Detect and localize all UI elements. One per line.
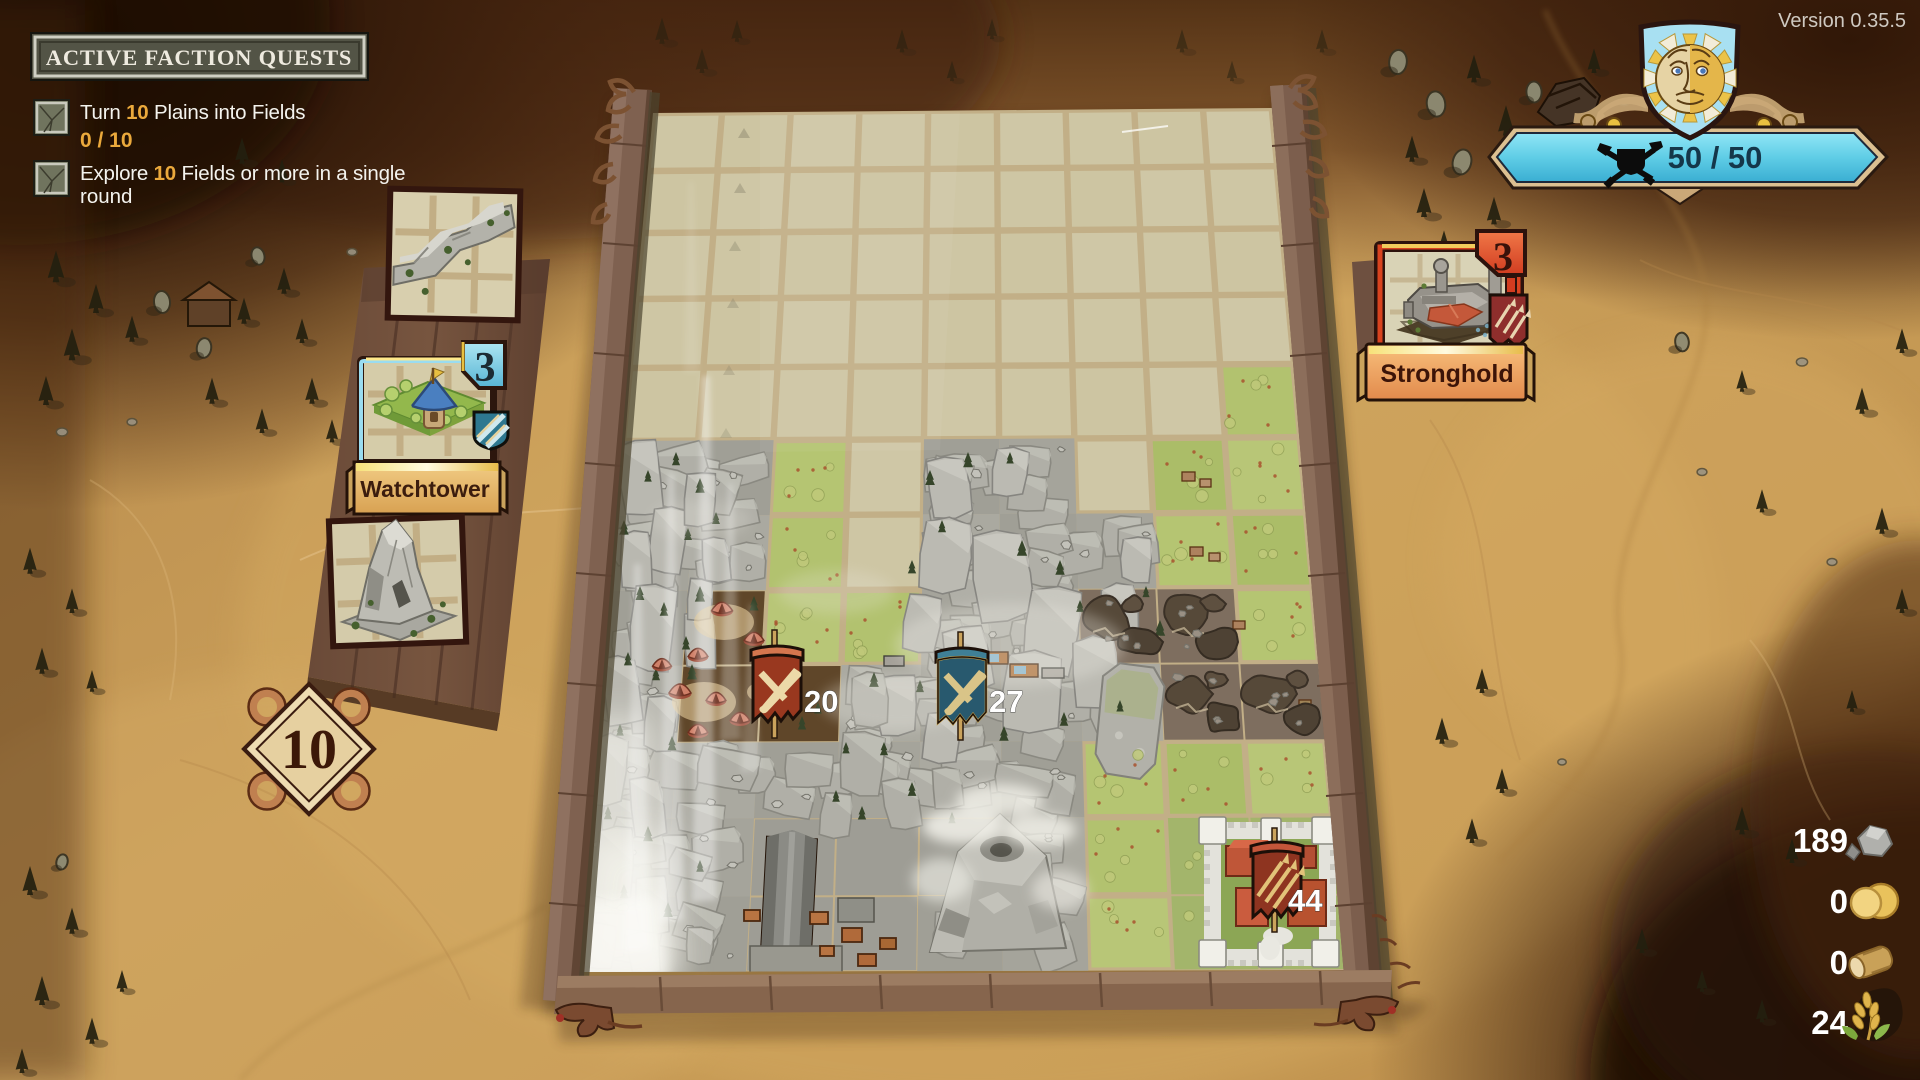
svg-text:44: 44 bbox=[1288, 883, 1323, 918]
svg-text:Version 0.35.5: Version 0.35.5 bbox=[1778, 10, 1906, 32]
svg-text:0: 0 bbox=[1830, 883, 1848, 920]
svg-text:3: 3 bbox=[475, 345, 496, 391]
svg-text:189: 189 bbox=[1793, 822, 1848, 859]
svg-text:Stronghold: Stronghold bbox=[1380, 360, 1513, 388]
svg-text:round: round bbox=[80, 185, 132, 208]
svg-text:ACTIVE FACTION QUESTS: ACTIVE FACTION QUESTS bbox=[46, 45, 352, 70]
svg-text:50 / 50: 50 / 50 bbox=[1668, 140, 1763, 175]
svg-text:20: 20 bbox=[804, 684, 838, 719]
svg-text:24: 24 bbox=[1811, 1004, 1848, 1041]
svg-text:3: 3 bbox=[1493, 234, 1513, 279]
svg-text:0: 0 bbox=[1830, 944, 1848, 981]
svg-text:27: 27 bbox=[989, 684, 1023, 719]
svg-text:Watchtower: Watchtower bbox=[360, 476, 490, 502]
svg-text:10: 10 bbox=[281, 719, 337, 781]
svg-text:Explore 10 Fields or more in a: Explore 10 Fields or more in a single bbox=[80, 162, 405, 185]
svg-text:Turn 10 Plains into Fields: Turn 10 Plains into Fields bbox=[80, 101, 305, 124]
svg-text:0 / 10: 0 / 10 bbox=[80, 129, 133, 152]
